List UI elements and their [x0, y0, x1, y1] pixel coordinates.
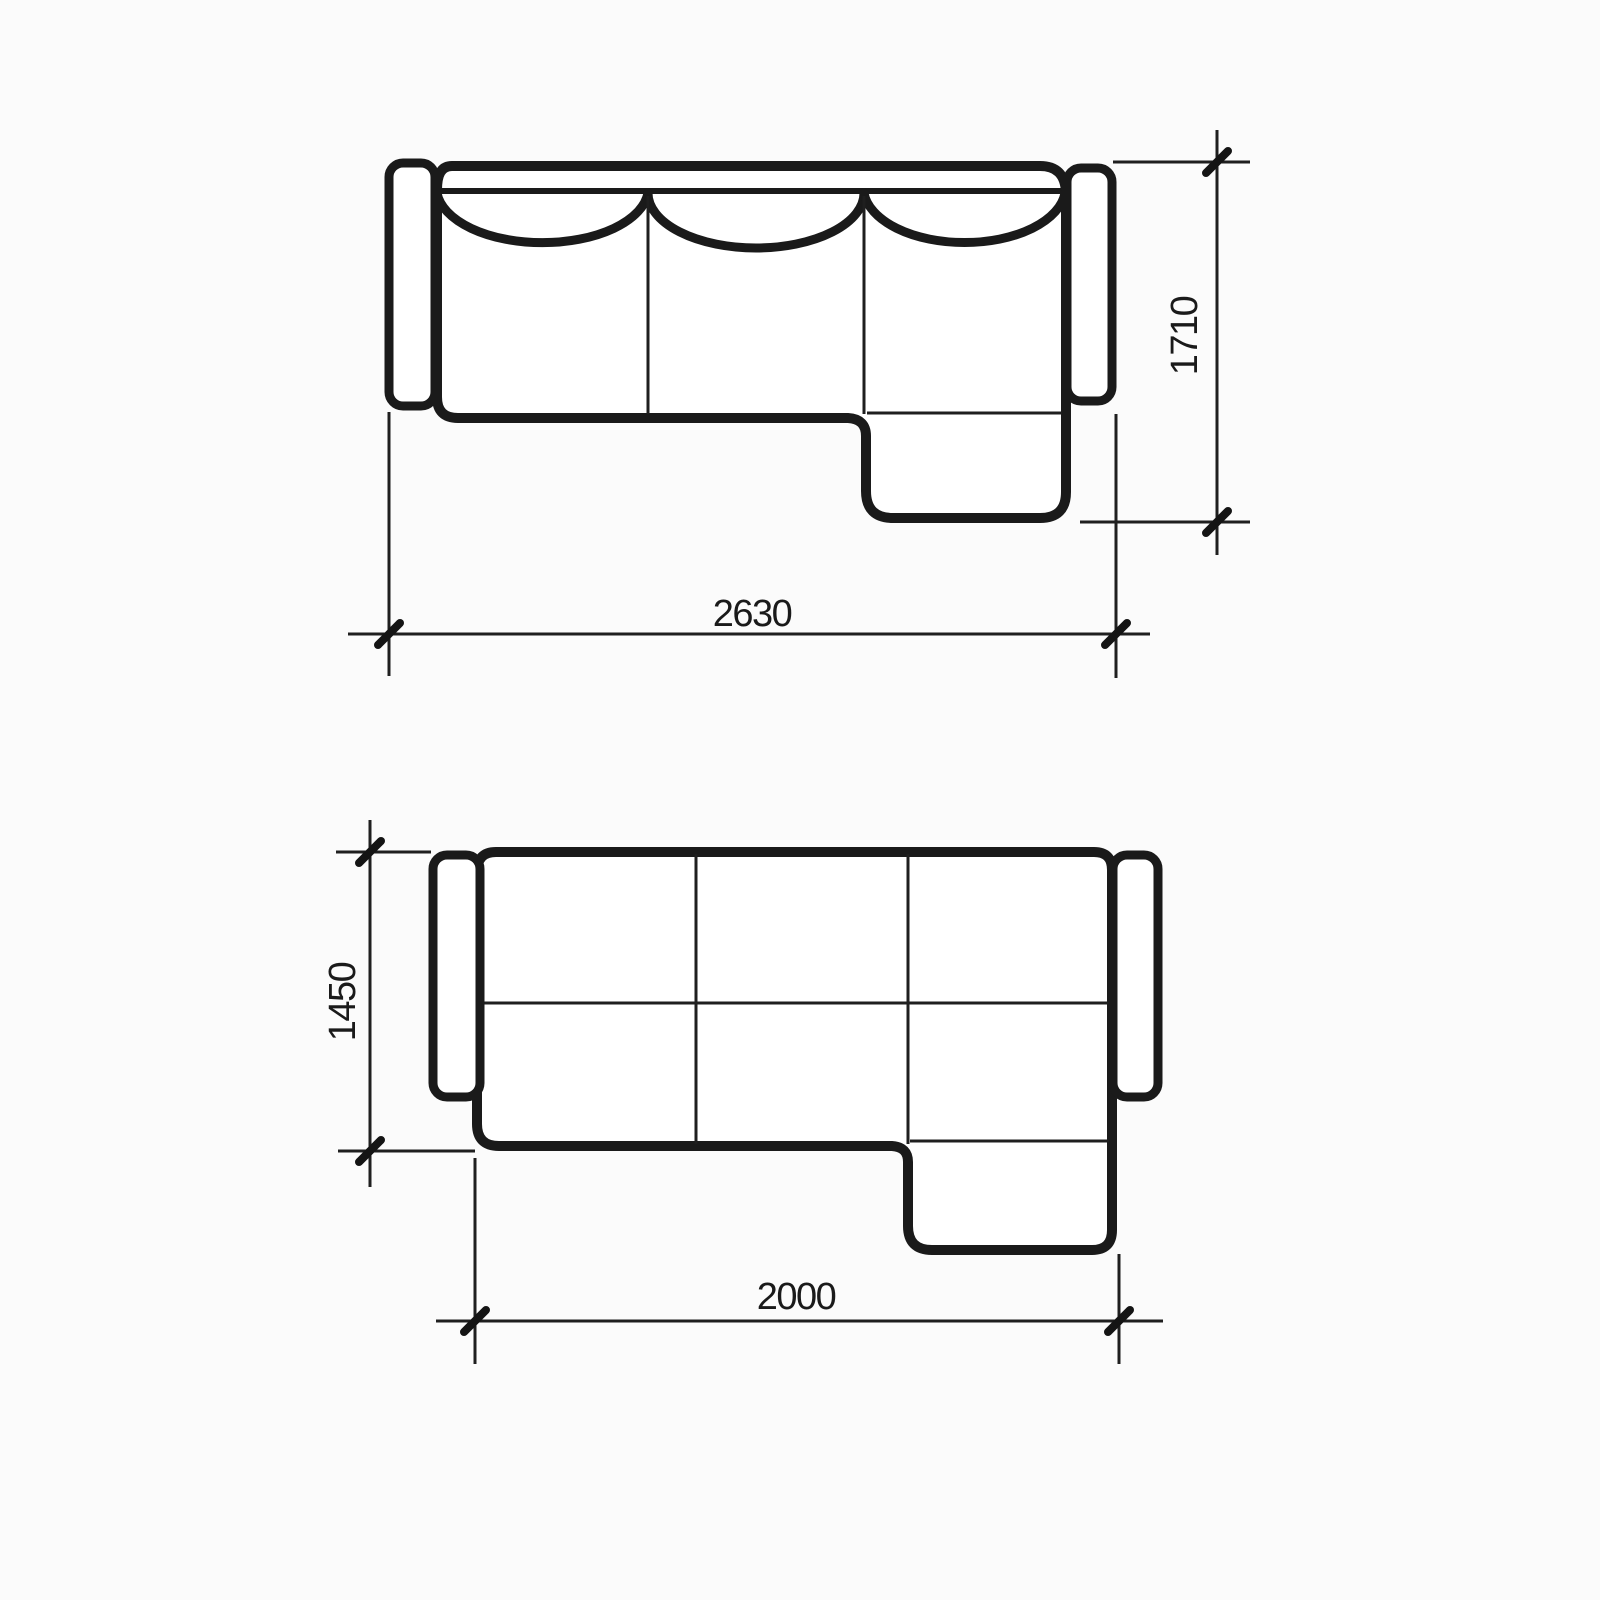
sofa-body-outline [437, 166, 1066, 518]
dim-label-sofa-depth: 1710 [1164, 296, 1206, 375]
dim-label-bed-width: 2000 [757, 1276, 836, 1318]
sofa-dimensions-drawing: 2630 1710 [0, 0, 1600, 1600]
bed-left-armrest [433, 855, 480, 1097]
bed-right-armrest [1113, 855, 1158, 1097]
technical-drawing-svg: 2630 1710 [0, 0, 1600, 1600]
sofa-plan-view: 2630 1710 [348, 130, 1250, 678]
bed-body-outline [477, 852, 1112, 1250]
dim-label-bed-depth: 1450 [322, 962, 364, 1041]
dim-label-sofa-width: 2630 [713, 593, 792, 635]
sofa-bed-view: 1450 2000 [322, 820, 1163, 1364]
left-armrest [389, 163, 435, 406]
right-armrest [1067, 168, 1112, 401]
